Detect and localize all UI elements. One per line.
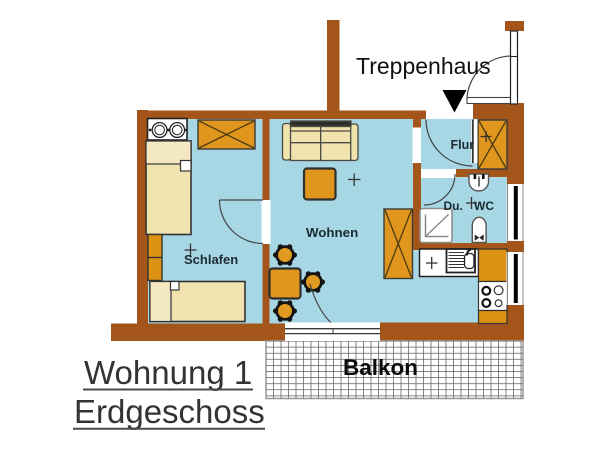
svg-text:Flur: Flur (451, 138, 475, 152)
svg-text:Wohnen: Wohnen (306, 225, 358, 240)
svg-text:Treppenhaus: Treppenhaus (356, 53, 491, 79)
svg-text:Erdgeschoss: Erdgeschoss (74, 393, 265, 430)
svg-text:Schlafen: Schlafen (184, 252, 238, 267)
svg-text:WC: WC (474, 199, 494, 213)
svg-text:Du.: Du. (444, 199, 463, 213)
svg-text:Balkon: Balkon (343, 355, 418, 380)
svg-text:Wohnung 1: Wohnung 1 (84, 354, 252, 391)
